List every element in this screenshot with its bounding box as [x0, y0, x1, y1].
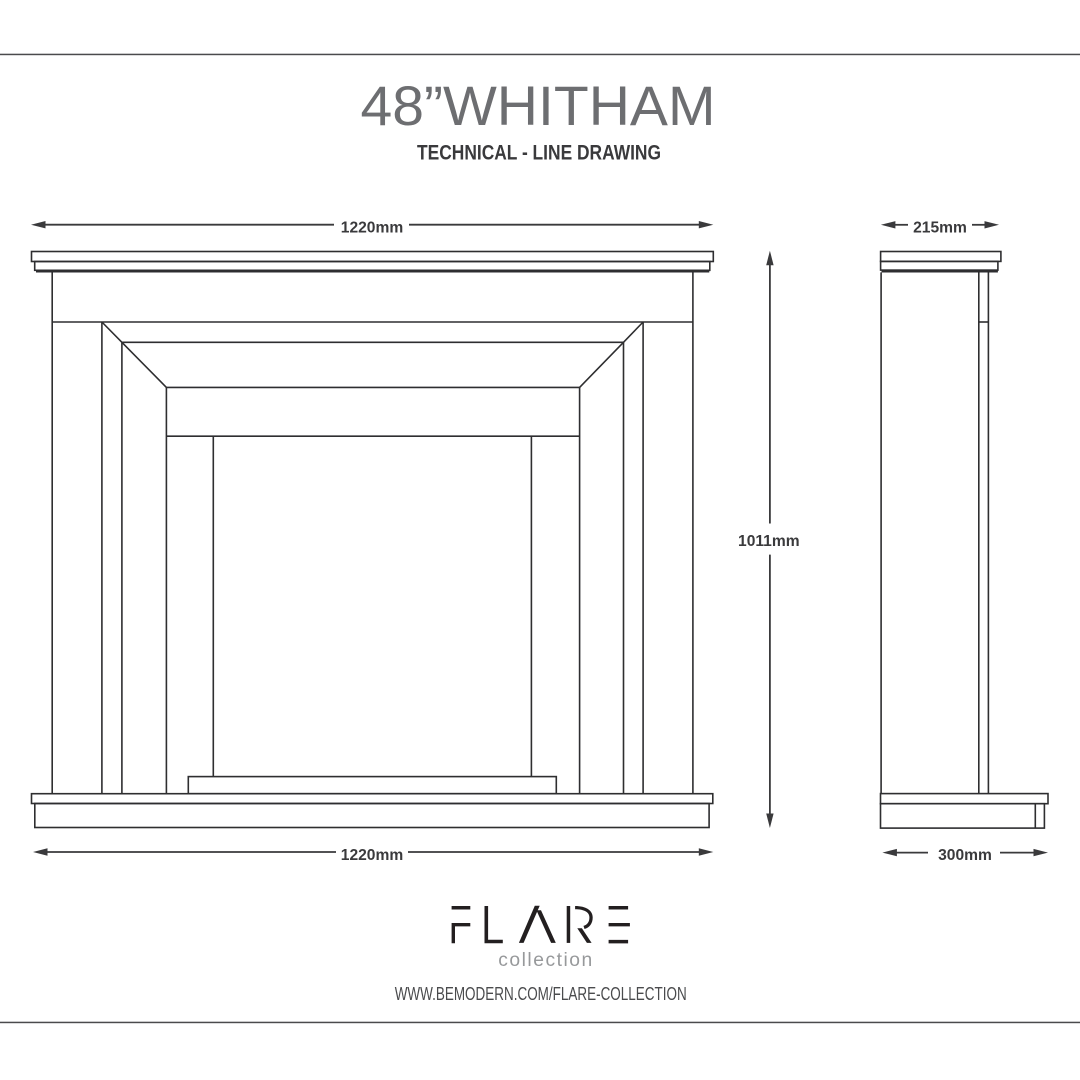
svg-text:collection: collection [498, 950, 594, 971]
svg-text:WWW.BEMODERN.COM/FLARE-COLLECT: WWW.BEMODERN.COM/FLARE-COLLECTION [395, 983, 687, 1004]
svg-text:48”WHITHAM: 48”WHITHAM [361, 74, 716, 137]
svg-text:1220mm: 1220mm [341, 219, 403, 236]
svg-text:TECHNICAL - LINE DRAWING: TECHNICAL - LINE DRAWING [417, 141, 661, 165]
svg-text:1011mm: 1011mm [738, 533, 800, 550]
svg-text:300mm: 300mm [938, 847, 992, 864]
svg-text:1220mm: 1220mm [341, 847, 403, 864]
svg-text:215mm: 215mm [913, 219, 967, 236]
